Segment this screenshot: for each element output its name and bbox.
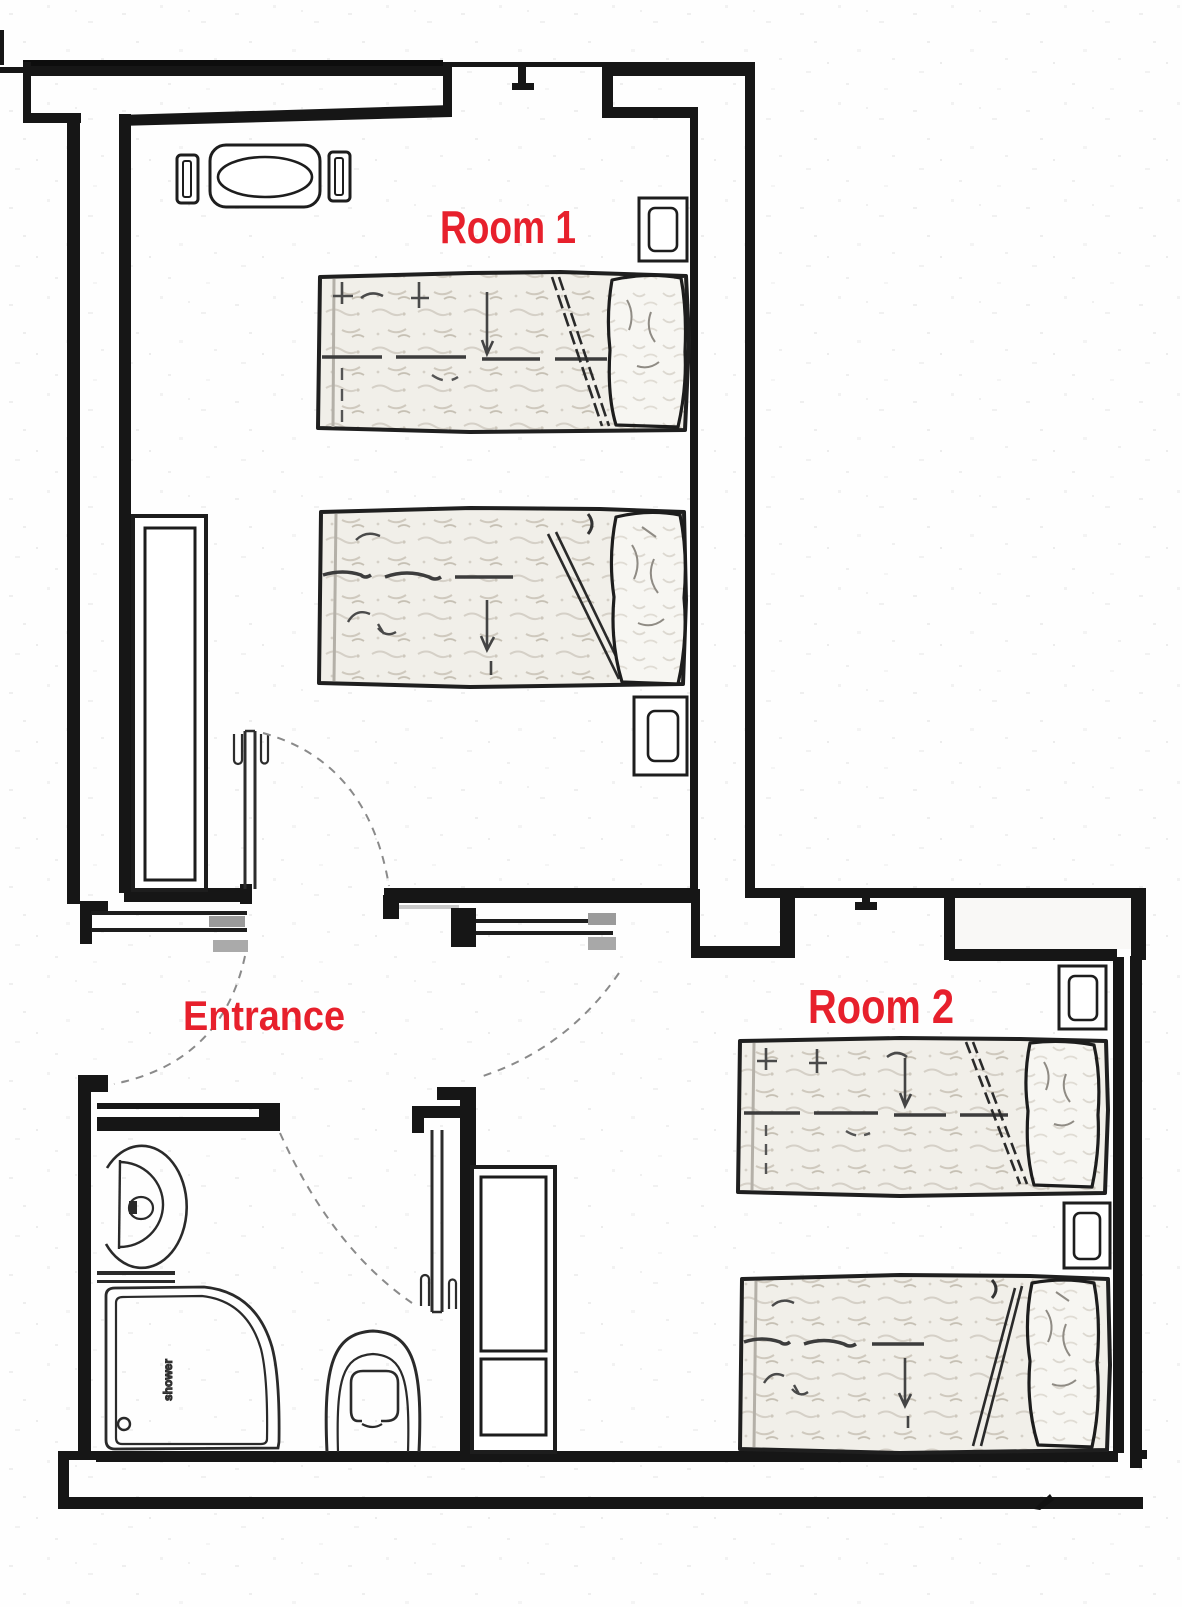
- svg-text:Room 2: Room 2: [808, 981, 954, 1034]
- svg-text:Entrance: Entrance: [183, 992, 345, 1039]
- svg-text:shower: shower: [161, 1359, 175, 1401]
- svg-text:Room 1: Room 1: [440, 201, 576, 253]
